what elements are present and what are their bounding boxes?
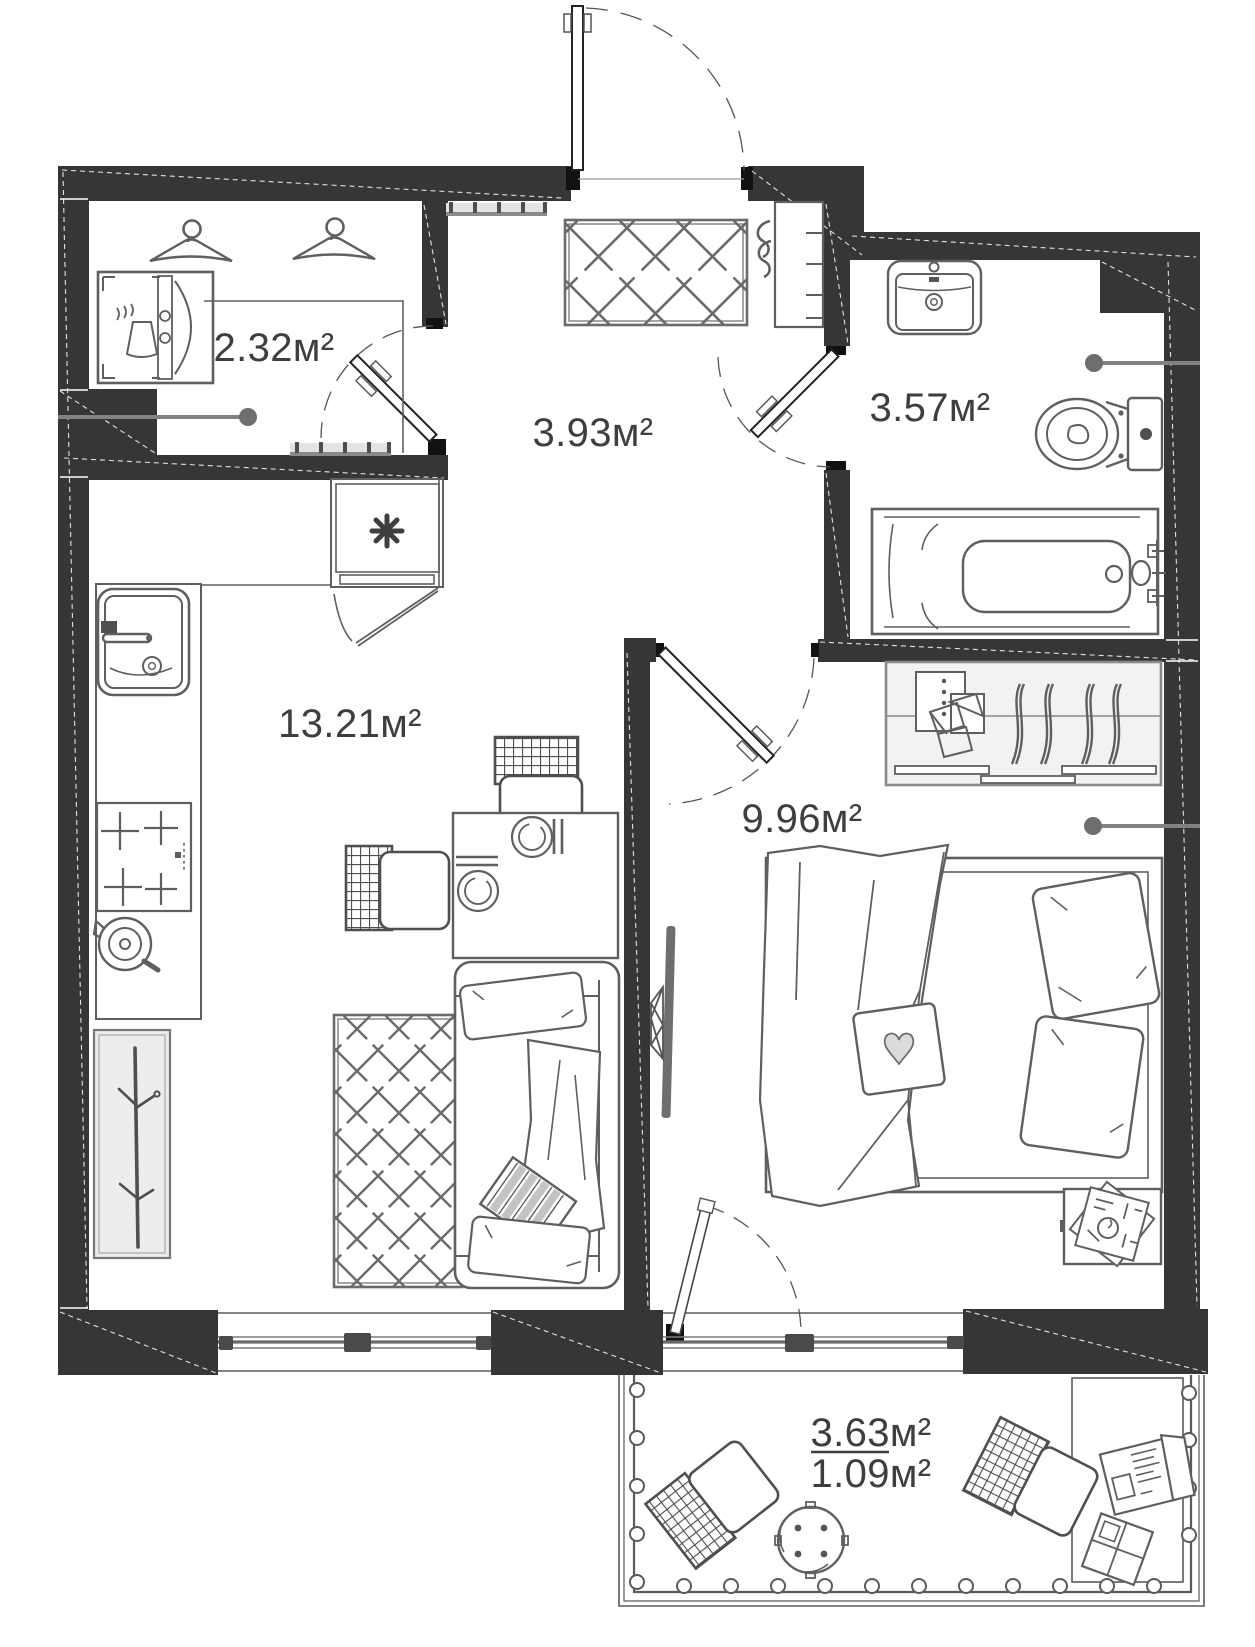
svg-text:3.57м²: 3.57м² [869, 386, 990, 430]
svg-text:13.21м²: 13.21м² [278, 702, 422, 746]
svg-text:3.63м²: 3.63м² [810, 1411, 931, 1455]
svg-text:1.09м²: 1.09м² [810, 1452, 931, 1496]
svg-text:2.32м²: 2.32м² [213, 326, 334, 370]
svg-text:9.96м²: 9.96м² [741, 797, 862, 841]
svg-text:3.93м²: 3.93м² [532, 411, 653, 455]
